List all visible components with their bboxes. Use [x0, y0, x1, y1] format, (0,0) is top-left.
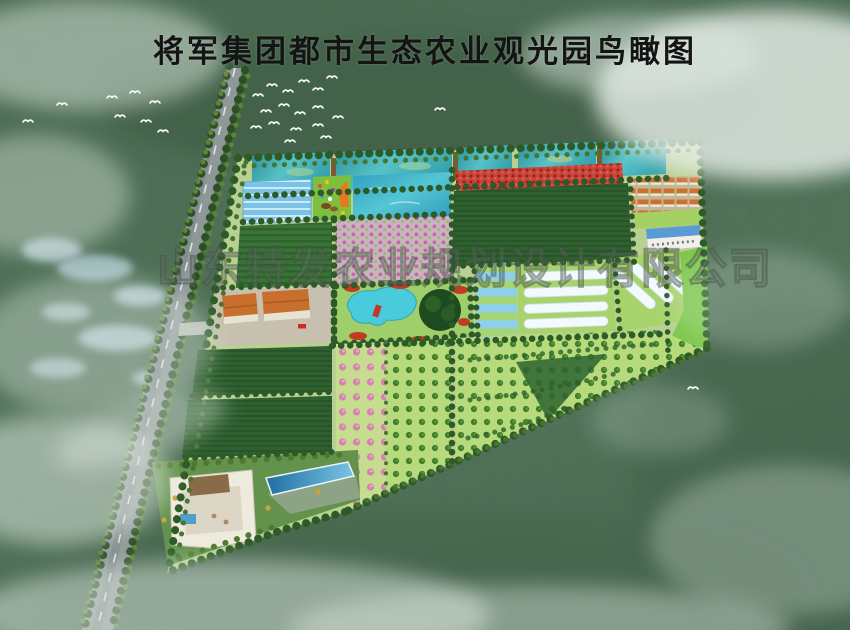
white-visitor-center [170, 470, 256, 548]
horse-figures [321, 203, 331, 209]
office-building-b [262, 289, 310, 321]
red-car [298, 324, 306, 329]
company-watermark: 山东特发农业规划设计有限公司 [157, 244, 773, 293]
playground [313, 175, 351, 221]
scene-canvas: 山东特发农业规划设计有限公司 [0, 0, 850, 630]
office-building-a [222, 293, 258, 324]
birdseye-rendering: 山东特发农业规划设计有限公司 将军集团都市生态农业观光园鸟瞰图 [0, 0, 850, 630]
